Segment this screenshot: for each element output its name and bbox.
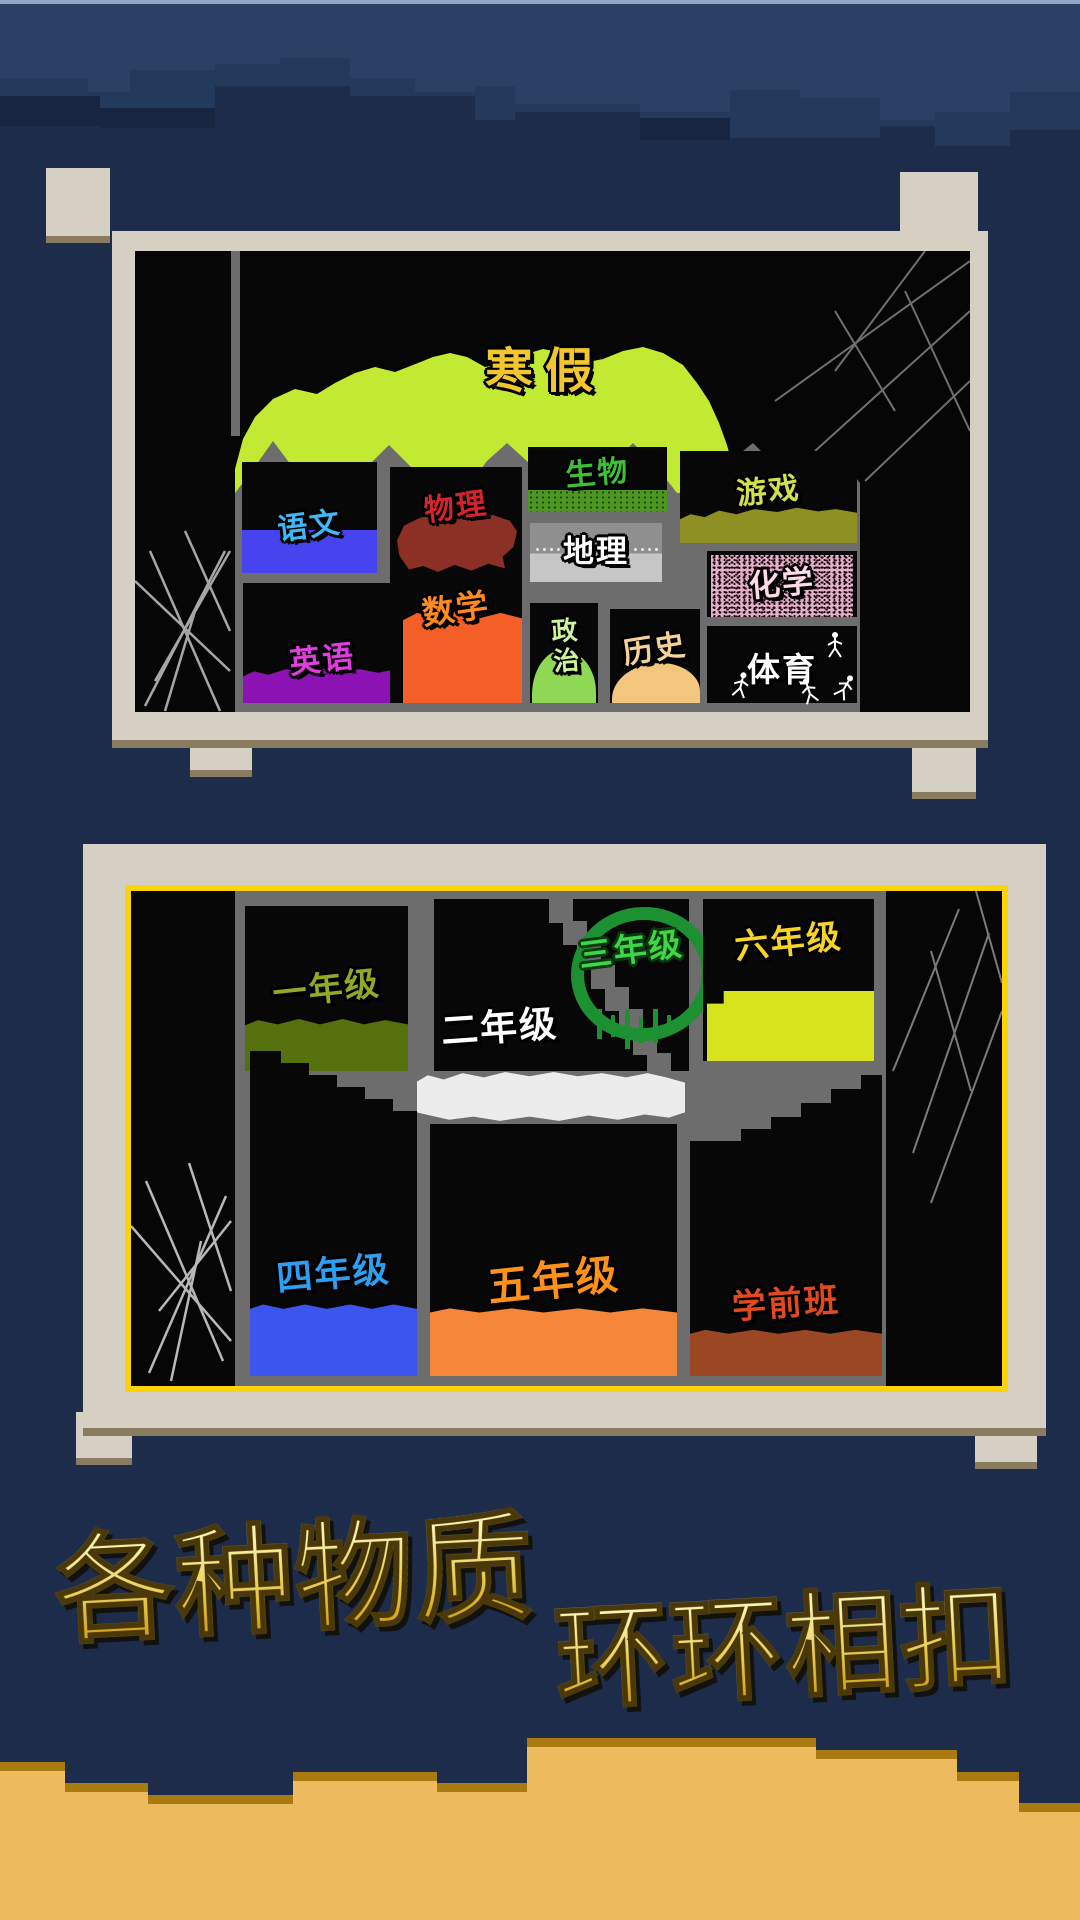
tagline-line1: 各种物质: [52, 1508, 538, 1651]
room-label: 游戏: [679, 468, 858, 516]
frame-tab: [900, 172, 978, 234]
room-grade6[interactable]: 六年级: [703, 899, 874, 1061]
grade6-terrain-block: [707, 991, 874, 1061]
room-huaxue-tiyu[interactable]: 化学 体育: [707, 551, 857, 703]
stair-wall: [549, 899, 573, 923]
room-yuwen[interactable]: 语文: [242, 462, 377, 573]
graffiti-drip: [653, 1009, 658, 1043]
room-wuli-shuxue[interactable]: 物理 数学: [390, 467, 522, 703]
frame-tab: [912, 736, 976, 792]
wall-divider: [707, 617, 857, 626]
room-label: 一年级: [244, 964, 410, 1015]
room-zhengzhi[interactable]: 政治: [530, 603, 598, 703]
sky-dark-patch: [0, 96, 100, 126]
graffiti-drip: [639, 1017, 643, 1043]
room-grade1[interactable]: 一年级: [245, 906, 408, 1071]
room-lishi[interactable]: 历史: [610, 609, 700, 703]
stick-figure-icon: [825, 631, 845, 659]
room-label: 学前班: [689, 1280, 883, 1327]
room-label: 二年级: [440, 1005, 559, 1050]
game-promo-screenshot: 寒假 语文 英语 物理 数学 生物 地理: [0, 0, 1080, 1920]
frame-tab: [46, 168, 110, 236]
panel2-map: 一年级 二年级 三年级 六年级 四年级 五年级: [131, 891, 1002, 1386]
room-label: 四年级: [249, 1250, 419, 1300]
panel1-title: 寒假: [485, 347, 605, 395]
room-youxi[interactable]: 游戏: [680, 451, 857, 543]
tagline-line2: 环环相扣: [552, 1580, 1017, 1717]
panel1-map: 寒假 语文 英语 物理 数学 生物 地理: [135, 251, 970, 712]
room-label: 生物: [527, 453, 668, 495]
grade4-terrain-block: [250, 1303, 417, 1376]
room-yingyu[interactable]: 英语: [243, 583, 402, 703]
room-label: 五年级: [428, 1247, 678, 1315]
room-label: 历史: [608, 628, 702, 672]
graffiti-drip: [597, 1009, 602, 1039]
preschool-terrain-block: [690, 1328, 882, 1376]
grade5-terrain-block: [430, 1307, 677, 1376]
sand-terrain: [0, 1739, 1080, 1920]
room-shengwu[interactable]: 生物: [528, 447, 667, 512]
room-label: 六年级: [702, 916, 876, 968]
room-dili[interactable]: 地理: [530, 523, 662, 582]
sky-dark-patch: [100, 108, 215, 128]
frame-tab: [190, 736, 252, 770]
room-grade5[interactable]: 五年级: [430, 1124, 677, 1376]
sky-top-line: [0, 0, 1080, 4]
sky-dark-patch: [640, 118, 730, 140]
room-label: 地理: [530, 537, 662, 568]
room-grade4[interactable]: 四年级: [250, 1051, 417, 1376]
graffiti-drip: [611, 1015, 615, 1037]
room-label: 政治: [548, 616, 578, 678]
graffiti-drip: [667, 1015, 671, 1035]
graffiti-drip: [625, 1009, 630, 1049]
